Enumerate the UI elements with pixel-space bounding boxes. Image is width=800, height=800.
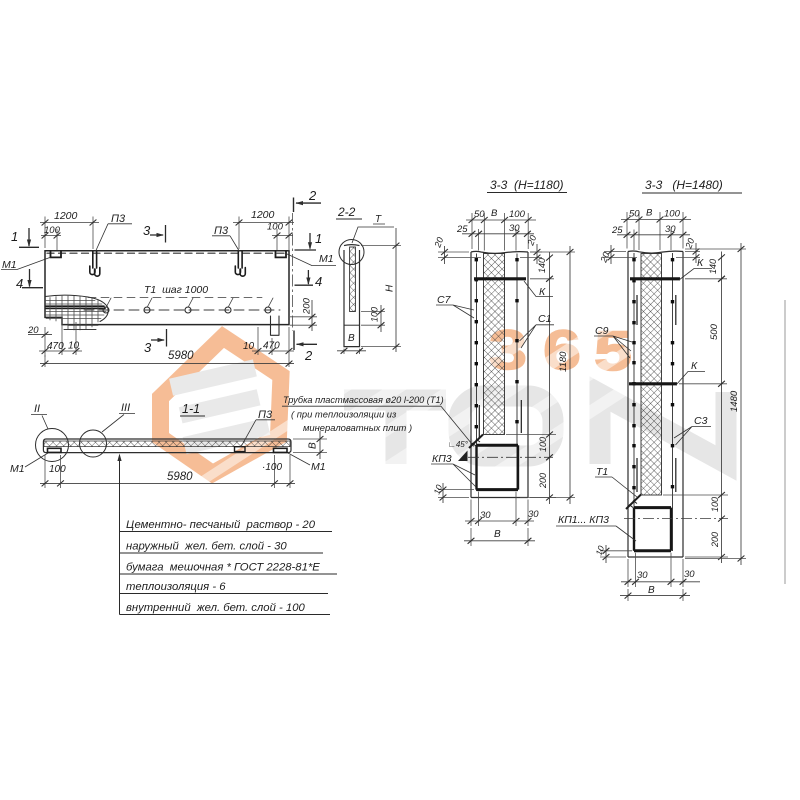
- svg-text:Т1 шаг 1000: Т1 шаг 1000: [144, 284, 208, 296]
- svg-text:2: 2: [304, 348, 313, 363]
- svg-text:Цементно- песчаный раствор -: Цементно- песчаный раствор - 20: [126, 519, 316, 531]
- svg-text:140: 140: [537, 258, 547, 273]
- svg-text:2: 2: [308, 188, 317, 203]
- svg-text:100: 100: [538, 437, 548, 452]
- svg-text:М1: М1: [311, 461, 326, 473]
- svg-text:1-1: 1-1: [182, 402, 200, 416]
- svg-text:В: В: [646, 208, 653, 219]
- svg-text:140: 140: [708, 259, 718, 274]
- svg-text:Н: Н: [385, 284, 396, 292]
- svg-text:С9: С9: [595, 325, 609, 337]
- svg-text:4: 4: [315, 274, 322, 289]
- svg-text:3: 3: [143, 223, 151, 238]
- svg-text:внутренний жел. бет. слой - 1: внутренний жел. бет. слой - 100: [126, 602, 305, 614]
- svg-text:Трубка пластмассовая ø20 l-200: Трубка пластмассовая ø20 l-200 (Т1): [283, 395, 444, 405]
- svg-text:50: 50: [474, 209, 485, 220]
- svg-text:2-2: 2-2: [337, 205, 356, 219]
- svg-text:470: 470: [263, 341, 280, 352]
- svg-text:3-3 (Н=1180): 3-3 (Н=1180): [490, 178, 563, 192]
- svg-text:100: 100: [710, 497, 720, 512]
- svg-text:( при теплоизоляции из: ( при теплоизоляции из: [291, 409, 397, 420]
- svg-text:100: 100: [49, 464, 66, 475]
- svg-text:30: 30: [665, 224, 676, 235]
- svg-text:С7: С7: [437, 294, 452, 306]
- svg-text:П3: П3: [111, 213, 126, 225]
- svg-text:1480: 1480: [729, 390, 740, 412]
- svg-text:∟45°: ∟45°: [448, 440, 469, 449]
- svg-text:30: 30: [528, 509, 539, 520]
- svg-text:С1: С1: [538, 313, 551, 325]
- svg-text:В: В: [494, 529, 501, 540]
- svg-text:30: 30: [684, 569, 695, 580]
- svg-text:10: 10: [68, 341, 80, 352]
- svg-text:КП1... КП3: КП1... КП3: [558, 514, 609, 526]
- svg-text:С3: С3: [694, 415, 708, 427]
- svg-text:минераловатных плит ): минераловатных плит ): [303, 422, 412, 433]
- svg-text:30: 30: [637, 570, 648, 581]
- svg-text:К: К: [691, 360, 698, 372]
- svg-text:М1: М1: [319, 253, 334, 265]
- svg-text:К: К: [697, 257, 704, 269]
- svg-text:М1: М1: [10, 463, 25, 475]
- svg-text:10: 10: [243, 341, 255, 352]
- svg-text:1: 1: [11, 229, 18, 244]
- svg-text:1200: 1200: [54, 210, 78, 222]
- svg-text:3: 3: [144, 340, 152, 355]
- svg-text:бумага мешочная * ГОСТ 2228-8: бумага мешочная * ГОСТ 2228-81*Е: [126, 562, 320, 574]
- svg-text:200: 200: [538, 473, 548, 489]
- svg-text:100: 100: [509, 209, 526, 220]
- svg-text:100: 100: [664, 209, 681, 220]
- svg-text:100: 100: [44, 225, 61, 236]
- svg-text:470: 470: [47, 341, 64, 352]
- svg-text:3-3 (Н=1480): 3-3 (Н=1480): [645, 178, 723, 192]
- svg-text:В: В: [491, 208, 498, 219]
- svg-text:В: В: [308, 442, 319, 449]
- svg-text:II: II: [34, 403, 40, 415]
- svg-text:30: 30: [480, 510, 491, 521]
- svg-text:25: 25: [456, 224, 468, 235]
- svg-text:В: В: [648, 585, 655, 596]
- svg-text:50: 50: [629, 209, 640, 220]
- svg-text:30: 30: [509, 223, 520, 234]
- svg-text:100: 100: [370, 307, 380, 322]
- svg-text:П3: П3: [214, 225, 229, 237]
- svg-text:КП3: КП3: [432, 453, 452, 465]
- svg-text:теплоизоляция - 6: теплоизоляция - 6: [126, 581, 226, 593]
- svg-text:5980: 5980: [167, 471, 193, 483]
- svg-text:5980: 5980: [168, 350, 194, 362]
- svg-text:1: 1: [315, 231, 322, 246]
- svg-text:100: 100: [267, 222, 284, 233]
- svg-text:1180: 1180: [558, 351, 569, 372]
- svg-text:·100: ·100: [262, 462, 282, 473]
- svg-text:Т1: Т1: [596, 466, 608, 478]
- svg-text:4: 4: [16, 276, 23, 291]
- svg-text:25: 25: [611, 225, 623, 236]
- svg-text:Т: Т: [375, 214, 382, 225]
- svg-text:III: III: [121, 402, 130, 414]
- svg-text:500: 500: [709, 323, 720, 340]
- svg-text:наружный жел. бет. слой - 30: наружный жел. бет. слой - 30: [126, 541, 287, 553]
- svg-text:200: 200: [710, 532, 720, 548]
- svg-text:П3: П3: [258, 409, 273, 421]
- svg-text:В: В: [348, 333, 355, 344]
- svg-text:200: 200: [302, 297, 313, 315]
- svg-text:1200: 1200: [251, 209, 275, 221]
